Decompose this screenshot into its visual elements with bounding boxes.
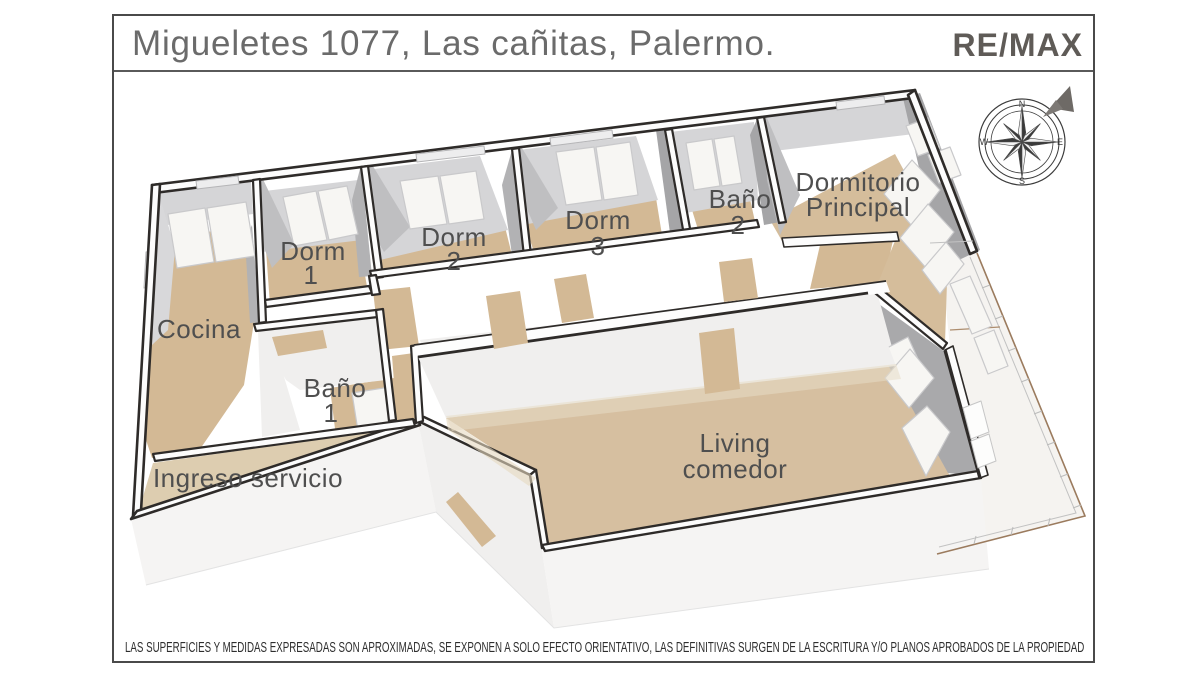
svg-text:2: 2 (447, 246, 462, 276)
svg-text:S: S (1019, 176, 1025, 186)
svg-text:comedor: comedor (683, 454, 788, 484)
svg-text:1: 1 (324, 398, 339, 428)
svg-text:1: 1 (304, 260, 319, 290)
svg-text:3: 3 (591, 231, 606, 261)
svg-text:N: N (1019, 99, 1026, 109)
svg-text:2: 2 (731, 210, 746, 240)
svg-text:Ingreso servicio: Ingreso servicio (153, 463, 343, 493)
svg-text:W: W (980, 137, 989, 147)
svg-text:E: E (1057, 137, 1063, 147)
svg-text:Principal: Principal (806, 192, 910, 222)
svg-text:Cocina: Cocina (157, 314, 241, 344)
